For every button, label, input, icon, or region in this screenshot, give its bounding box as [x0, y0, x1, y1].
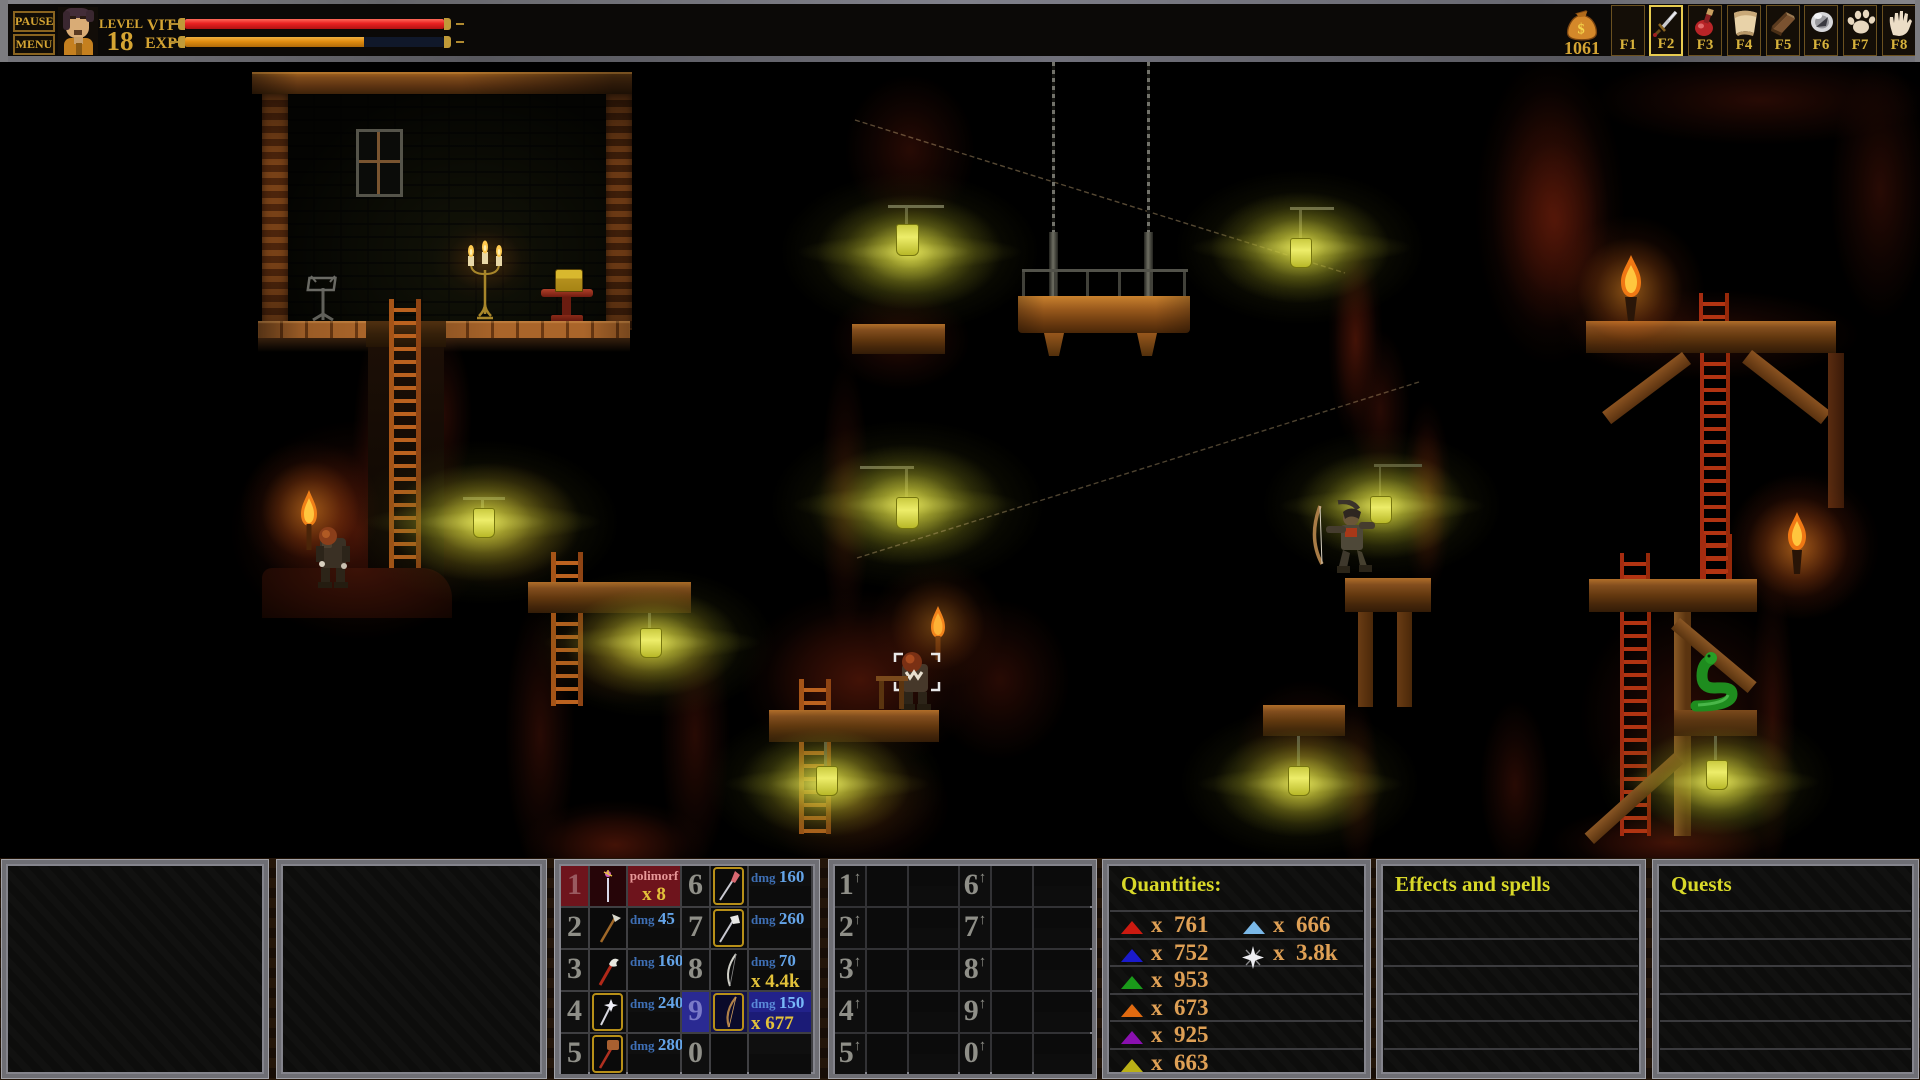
svg-text:$: $: [1577, 22, 1584, 38]
